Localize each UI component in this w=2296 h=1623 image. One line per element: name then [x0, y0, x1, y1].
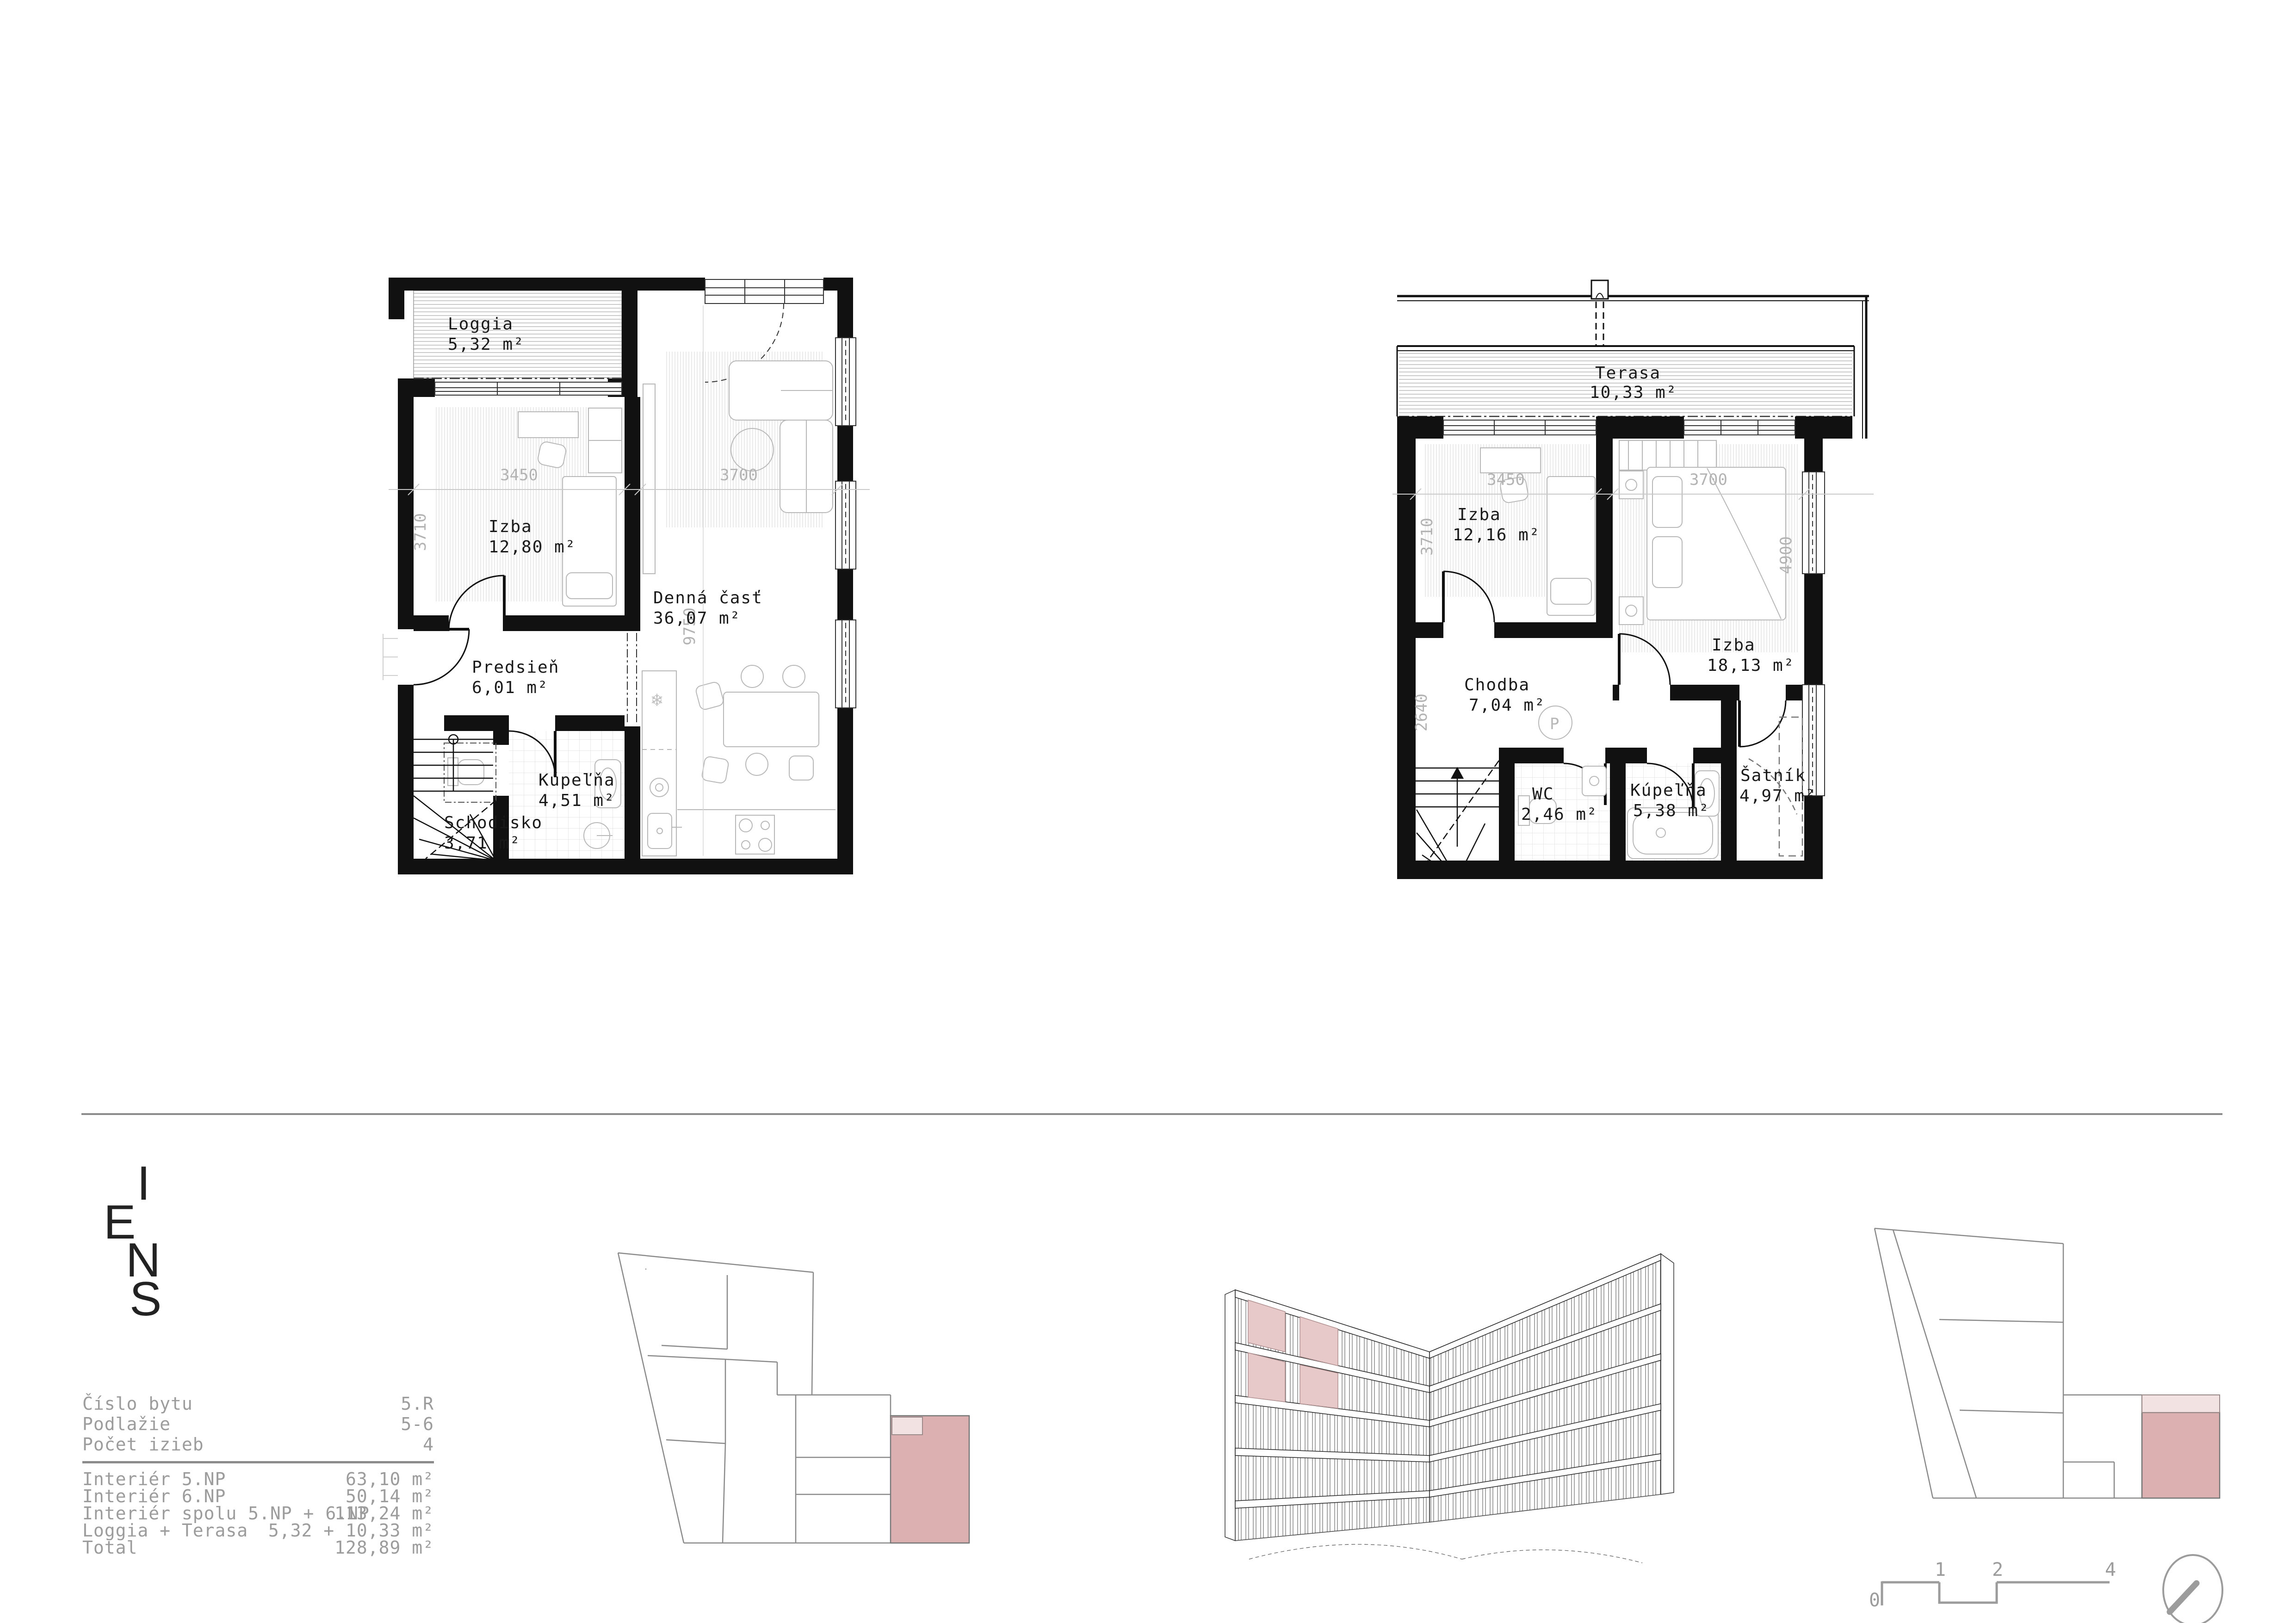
dim-3710: 3710	[1418, 518, 1436, 556]
scale-label-2: 2	[1992, 1559, 2003, 1580]
table-row: Podlažie 5-6	[82, 1414, 434, 1434]
dim-3700: 3700	[720, 466, 758, 484]
table-row: Total 128,89 m²	[82, 1539, 434, 1556]
highlighted-unit-6np	[2142, 1412, 2220, 1498]
dim-3710: 3710	[411, 513, 430, 551]
room-label-loggia: Loggia	[448, 315, 514, 334]
north-arrow-icon	[2156, 1551, 2230, 1623]
scale-label-0: 0	[1869, 1590, 1880, 1611]
room-label-izba2: Izba	[1712, 636, 1756, 655]
row-label: Podlažie	[82, 1414, 171, 1434]
keyplan-5np	[601, 1240, 985, 1545]
room-area-wc: 2,46 m²	[1521, 805, 1598, 824]
exterior-landing	[383, 634, 398, 680]
room-area-izba: 12,80 m²	[489, 538, 576, 557]
scale-bar: 0 1 2 4	[1869, 1558, 2128, 1614]
scale-label-1: 1	[1935, 1559, 1946, 1580]
highlighted-unit-terrace	[2142, 1395, 2220, 1412]
room-label-terasa: Terasa	[1595, 364, 1661, 383]
room-area-kupelna: 5,38 m²	[1633, 801, 1710, 820]
table-divider	[82, 1461, 434, 1463]
building-axonometric	[1221, 1235, 1675, 1587]
room-label-kupelna: Kúpeľňa	[1630, 781, 1707, 800]
table-row: Loggia + Terasa 5,32 + 10,33 m²	[82, 1522, 434, 1539]
room-label-kupelna: Kúpeľňa	[538, 771, 615, 790]
room-label-schodisko: Schodisko	[444, 813, 543, 832]
room-label-satnik: Šatník	[1740, 766, 1806, 785]
section-divider	[81, 1113, 2222, 1115]
row-label: Loggia + Terasa	[82, 1522, 248, 1539]
room-area-izba1: 12,16 m²	[1453, 526, 1540, 545]
loggia-floor-hatch	[414, 291, 622, 378]
room-area-satnik: 4,97 m²	[1739, 787, 1816, 805]
row-value: 4	[423, 1434, 434, 1455]
room-area-terasa: 10,33 m²	[1590, 383, 1677, 402]
row-value: 63,10 m²	[346, 1471, 434, 1488]
room-area-schodisko: 3,71 m²	[444, 834, 521, 853]
room-area-kupelna: 4,51 m²	[538, 791, 615, 810]
room-label-denna: Denná časť	[653, 588, 763, 607]
row-label: Interiér spolu 5.NP + 6.NP	[82, 1505, 370, 1522]
room-area-denna: 36,07 m²	[653, 609, 741, 628]
keyplan-6np	[1869, 1217, 2262, 1587]
row-value: 50,14 m²	[346, 1488, 434, 1505]
loggia-window	[435, 382, 622, 395]
row-value: 113,24 m²	[334, 1505, 434, 1522]
svg-text:P: P	[1550, 715, 1559, 733]
room-area-chodba: 7,04 m²	[1469, 696, 1546, 715]
table-row: Interiér 5.NP 63,10 m²	[82, 1471, 434, 1488]
table-row: Interiér spolu 5.NP + 6.NP 113,24 m²	[82, 1505, 434, 1522]
floor-plan-5np: ❄ 3450 3700 3710	[379, 273, 879, 884]
logo-letter-s: S	[130, 1275, 161, 1323]
row-label: Interiér 6.NP	[82, 1488, 226, 1505]
logo-letter-i: I	[137, 1159, 150, 1208]
fridge-icon: ❄	[651, 689, 662, 711]
row-value: 5.R	[401, 1394, 434, 1414]
apartment-info-table: Číslo bytu 5.R Podlažie 5-6 Počet izieb …	[82, 1394, 434, 1556]
room-label-izba: Izba	[489, 517, 532, 536]
dim-3450: 3450	[500, 466, 538, 484]
floor-plan-6np: P	[1388, 278, 1878, 879]
row-label: Interiér 5.NP	[82, 1471, 226, 1488]
room-label-predsien: Predsieň	[472, 658, 559, 677]
window-icons	[835, 338, 856, 708]
table-row: Interiér 6.NP 50,14 m²	[82, 1488, 434, 1505]
dim-3700: 3700	[1690, 471, 1727, 489]
table-row: Počet izieb 4	[82, 1434, 434, 1455]
room-area-predsien: 6,01 m²	[472, 678, 549, 697]
room-area-izba2: 18,13 m²	[1707, 656, 1795, 675]
scale-label-4: 4	[2105, 1559, 2116, 1580]
row-value: 5,32 + 10,33 m²	[268, 1522, 434, 1539]
wall-opening-line	[627, 633, 637, 725]
room-label-wc: WC	[1532, 785, 1554, 804]
table-row: Číslo bytu 5.R	[82, 1394, 434, 1414]
room-label-chodba: Chodba	[1464, 675, 1530, 694]
drawing-sheet: ❄ 3450 3700 3710	[0, 0, 2296, 1623]
room-label-izba1: Izba	[1457, 505, 1501, 524]
row-label: Počet izieb	[82, 1434, 204, 1455]
roof-marker-icon	[1591, 280, 1608, 346]
highlighted-unit-loggia	[892, 1417, 922, 1435]
row-label: Číslo bytu	[82, 1394, 193, 1414]
row-label: Total	[82, 1539, 137, 1556]
dim-4900: 4900	[1777, 536, 1795, 574]
row-value: 128,89 m²	[334, 1539, 434, 1556]
room-area-loggia: 5,32 m²	[448, 335, 525, 354]
dim-2640: 2640	[1412, 694, 1431, 731]
dim-3450: 3450	[1487, 471, 1525, 489]
row-value: 5-6	[401, 1414, 434, 1434]
